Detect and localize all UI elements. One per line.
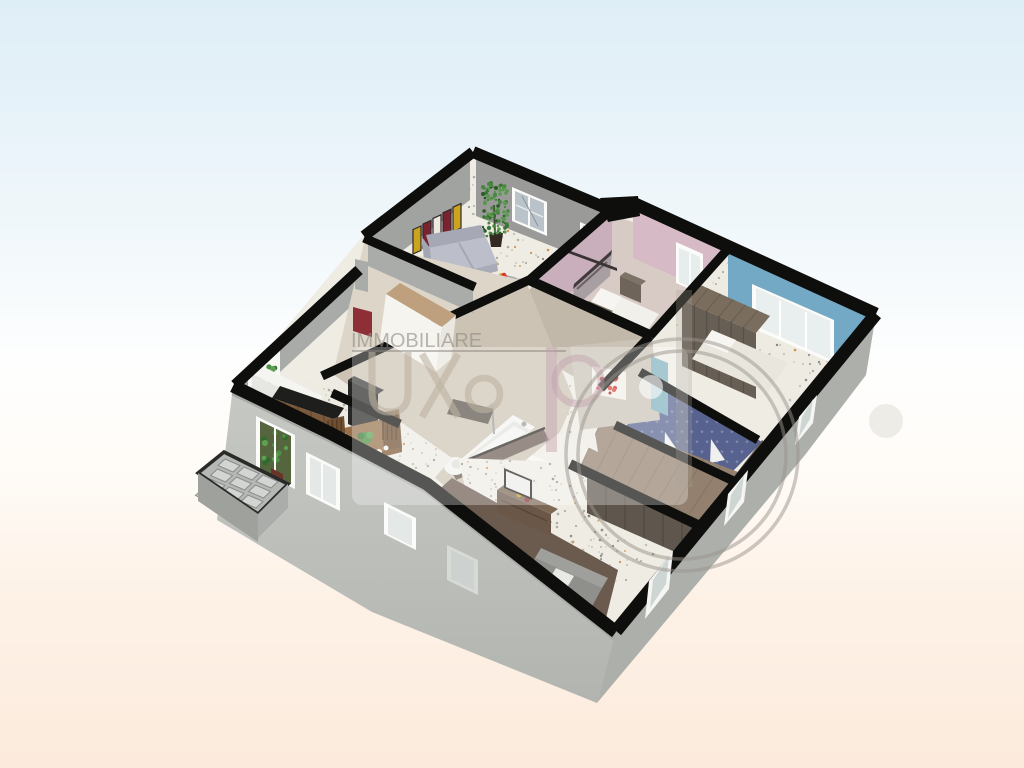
svg-text:IMMOBILIARE: IMMOBILIARE (351, 330, 482, 352)
